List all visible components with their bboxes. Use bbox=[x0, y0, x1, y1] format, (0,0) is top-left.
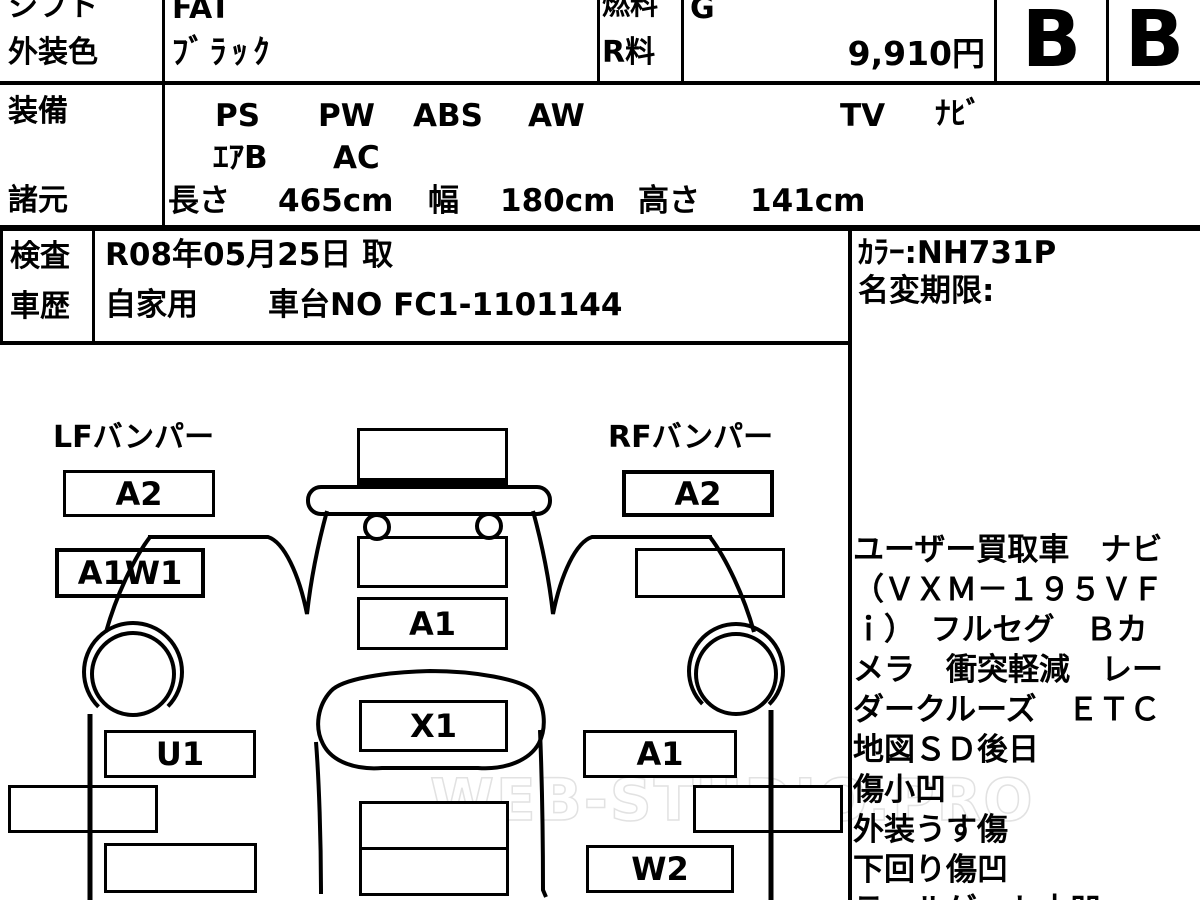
right-mirror-icon bbox=[477, 514, 501, 538]
equip-ps: PS bbox=[215, 99, 260, 133]
damage-box-lf-bumper: A2 bbox=[63, 470, 215, 517]
fuel-label: 燃料 bbox=[602, 0, 658, 21]
grade-overall: B bbox=[997, 0, 1106, 81]
spec-width-value: 180cm bbox=[500, 184, 615, 218]
damage-box-windshield-empty bbox=[357, 536, 508, 588]
color-code: ｶﾗｰ:NH731P bbox=[858, 236, 1056, 270]
divider-fuel-col bbox=[597, 0, 600, 81]
spec-length-label: 長さ bbox=[168, 184, 230, 218]
right-fender-arch bbox=[689, 624, 783, 718]
damage-box-right-door: A1 bbox=[583, 730, 737, 778]
equip-pw: PW bbox=[318, 99, 375, 133]
damage-code: A2 bbox=[674, 475, 721, 513]
damage-code: A2 bbox=[115, 475, 162, 513]
chassis-number: 車台NO FC1-1101144 bbox=[268, 288, 622, 322]
specs-label: 諸元 bbox=[8, 184, 68, 217]
rf-bumper-label: RFバンパー bbox=[608, 421, 773, 454]
lf-bumper-label: LFバンパー bbox=[53, 421, 214, 454]
right-column-divider bbox=[848, 228, 852, 900]
note-line: （ＶＸＭ－１９５ＶＦ bbox=[853, 564, 1198, 604]
note-line: 地図ＳＤ後日 bbox=[853, 724, 1198, 764]
history-label: 車歴 bbox=[10, 290, 70, 323]
name-change-deadline: 名変期限: bbox=[858, 274, 994, 308]
damage-code: W2 bbox=[631, 850, 689, 888]
damage-code: U1 bbox=[156, 735, 204, 773]
notes-column: ユーザー買取車 ナビ （ＶＸＭ－１９５ＶＦ ｉ） フルセグ Ｂカ メラ 衝突軽減… bbox=[853, 524, 1198, 900]
damage-box-roof-empty bbox=[357, 428, 508, 485]
damage-box-right-empty bbox=[693, 785, 843, 833]
note-line: ダークルーズ ＥＴＣ bbox=[853, 684, 1198, 724]
left-wheel-icon bbox=[92, 633, 174, 715]
note-line-clipped: テールゲート小凹 bbox=[853, 884, 1198, 900]
equip-ac: AC bbox=[333, 141, 380, 175]
damage-code: X1 bbox=[410, 707, 457, 745]
damage-box-hood: A1 bbox=[357, 597, 508, 650]
recycle-fee-label: R料 bbox=[602, 36, 655, 69]
divider-label-col bbox=[162, 0, 165, 225]
hline-under-specs bbox=[0, 225, 1200, 231]
recycle-fee-value: 9,910円 bbox=[660, 36, 985, 72]
hline-under-inspection bbox=[0, 341, 848, 345]
equip-abs: ABS bbox=[413, 99, 483, 133]
equipment-label: 装備 bbox=[8, 95, 68, 128]
hline-under-color-row bbox=[0, 81, 1200, 85]
shift-label: シフト bbox=[8, 0, 98, 23]
damage-code: A1 bbox=[636, 735, 683, 773]
note-line: ユーザー買取車 ナビ bbox=[853, 524, 1198, 564]
spec-length-value: 465cm bbox=[278, 184, 393, 218]
inspection-value: R08年05月25日 取 bbox=[105, 238, 393, 272]
exterior-color-value: ﾌﾞﾗｯｸ bbox=[172, 34, 275, 70]
note-line: 傷小凹 bbox=[853, 764, 1198, 804]
spec-height-value: 141cm bbox=[750, 184, 865, 218]
spec-width-label: 幅 bbox=[428, 184, 459, 218]
history-use: 自家用 bbox=[105, 288, 198, 322]
right-wheel-icon bbox=[696, 634, 776, 714]
damage-box-rf-fender-empty bbox=[635, 548, 785, 598]
equip-tv: TV bbox=[840, 99, 885, 133]
note-line: メラ 衝突軽減 レー bbox=[853, 644, 1198, 684]
damage-box-front-panel: X1 bbox=[359, 700, 508, 752]
equip-airbag: ｴｱB bbox=[213, 141, 268, 175]
damage-box-left-empty bbox=[8, 785, 158, 833]
damage-box-left-lower-empty bbox=[104, 843, 257, 893]
note-line: 下回り傷凹 bbox=[853, 844, 1198, 884]
damage-box-left-door: U1 bbox=[104, 730, 256, 778]
damage-box-rf-bumper: A2 bbox=[622, 470, 774, 517]
inspection-divider bbox=[92, 231, 95, 343]
roof-bar bbox=[308, 487, 550, 514]
left-inner-body-line bbox=[316, 742, 321, 894]
grade-interior: B bbox=[1109, 0, 1200, 81]
damage-box-right-sill: W2 bbox=[586, 845, 734, 893]
inspection-left-border bbox=[0, 231, 3, 343]
equip-navi: ﾅﾋﾞ bbox=[935, 97, 982, 131]
damage-code: A1W1 bbox=[78, 554, 183, 592]
note-line: ｉ） フルセグ Ｂカ bbox=[853, 604, 1198, 644]
auction-sheet: WEB-STUDIO.PRO シフト FAT 燃料 G 外装色 ﾌﾞﾗｯｸ R料… bbox=[0, 0, 1200, 900]
left-fender-arch bbox=[84, 623, 182, 721]
equip-aw: AW bbox=[528, 99, 585, 133]
inspection-label: 検査 bbox=[10, 240, 70, 273]
spec-height-label: 高さ bbox=[638, 184, 700, 218]
shift-value: FAT bbox=[172, 0, 230, 25]
damage-box-lf-fender: A1W1 bbox=[55, 548, 205, 598]
exterior-color-label: 外装色 bbox=[8, 36, 98, 69]
note-line: 外装うす傷 bbox=[853, 804, 1198, 844]
bumper-grid-divider bbox=[362, 847, 506, 850]
damage-box-bumper-grid bbox=[359, 801, 509, 896]
fuel-value: G bbox=[690, 0, 715, 25]
damage-code: A1 bbox=[409, 605, 456, 643]
